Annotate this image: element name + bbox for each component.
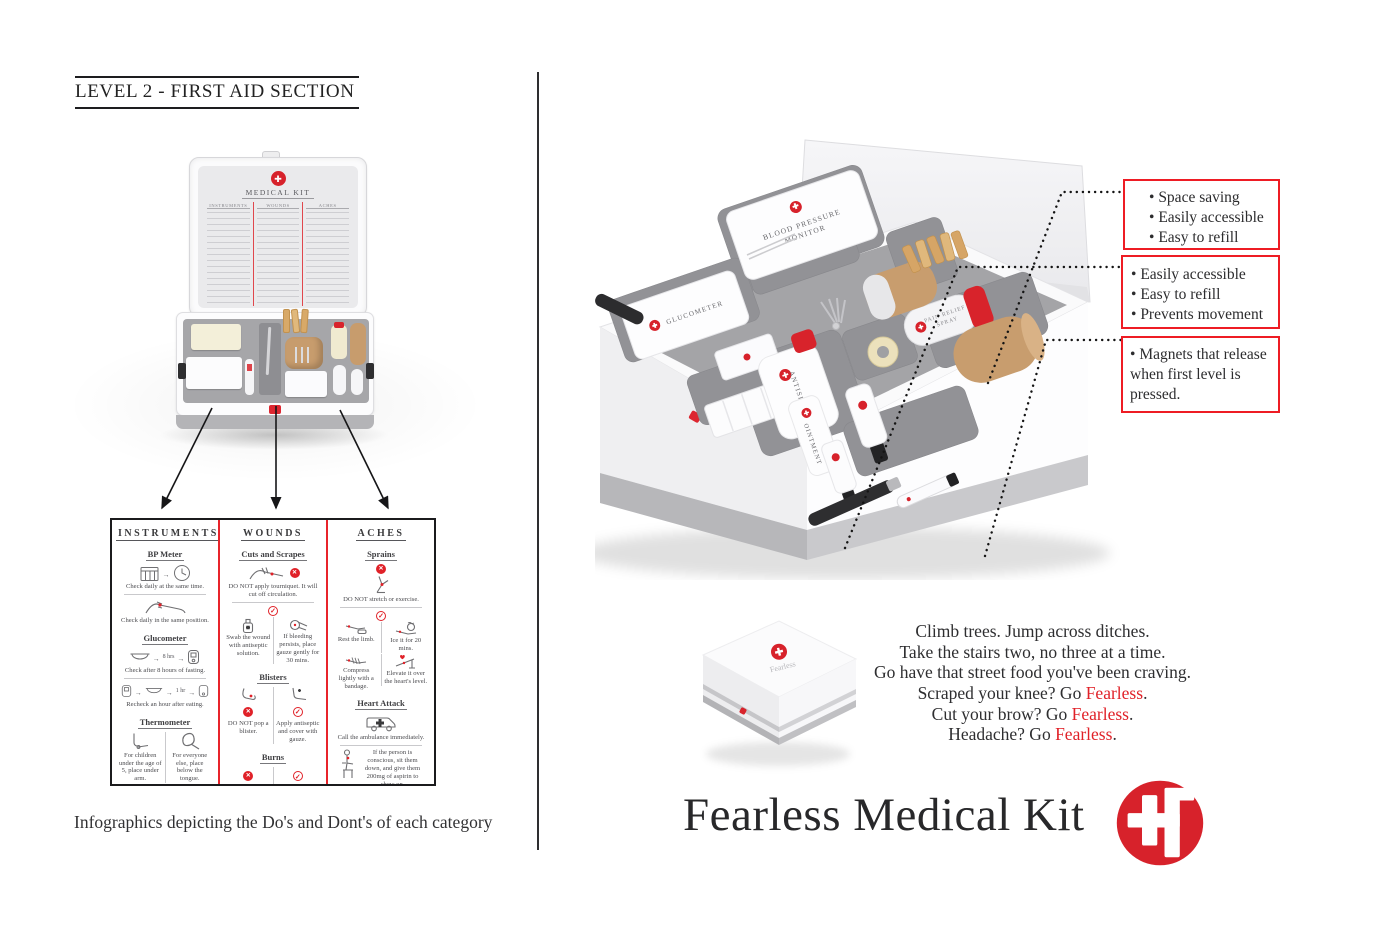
glucometer-device-icon — [198, 684, 209, 698]
infographic-column-aches: ACHES Sprains DO NOT stretch or exercise… — [326, 520, 434, 784]
tagline-line: Climb trees. Jump across ditches. — [860, 621, 1205, 642]
ice-pack-icon — [384, 622, 429, 637]
brand-title: Fearless Medical Kit — [683, 788, 1085, 842]
cell-caption: Elevate it over the heart's level. — [384, 670, 429, 686]
do-check-icon — [376, 611, 386, 621]
cell-caption: DO NOT stretch or exercise. — [332, 596, 430, 604]
elevate-leg-icon — [384, 654, 429, 670]
section-title: Sprains — [365, 549, 397, 561]
column-header: ACHES — [356, 528, 407, 541]
dont-x-icon — [376, 564, 386, 574]
bottle-item — [331, 325, 347, 359]
gauze-roll-icon — [276, 617, 321, 633]
dont-x-icon — [243, 771, 253, 781]
tagline-line: Headache? Go Fearless. — [860, 724, 1205, 745]
compress-bandage-icon — [334, 654, 379, 667]
open-kit-lid-render: MEDICAL KIT INSTRUMENTS WOUNDS ACHES — [189, 157, 367, 317]
white-box-item — [186, 357, 242, 389]
cell-caption: Recheck an hour after eating. — [116, 701, 214, 709]
do-check-icon — [293, 707, 303, 717]
cell-caption: Compress lightly with a bandage. — [334, 667, 379, 691]
cell-caption: Check daily at the same time. — [116, 583, 214, 591]
lid-kit-title: MEDICAL KIT — [242, 188, 314, 199]
crepe-roll-item — [350, 323, 366, 365]
callout-item: Prevents movement — [1131, 305, 1276, 325]
callout-item: Easily accessible — [1149, 208, 1274, 228]
bp-cuff-arm-icon — [143, 598, 187, 616]
lid-mini-column: ACHES — [302, 202, 352, 306]
column-header: WOUNDS — [241, 528, 305, 541]
mini-lines — [207, 212, 250, 304]
thermometer-mouth-icon — [168, 732, 213, 752]
cell-caption: Rest the limb. — [334, 636, 379, 644]
closed-kit-render: Fearless — [685, 612, 865, 777]
thermometer-underarm-icon — [118, 732, 163, 752]
brand-accent: Fearless — [1055, 724, 1112, 744]
arrow-right-icon — [177, 648, 184, 666]
dressing-pad-item — [191, 324, 241, 350]
cell-caption: For children under the age of 5, place u… — [118, 752, 163, 784]
brand-accent: Fearless — [1072, 704, 1129, 724]
antiseptic-bottle-icon — [226, 617, 271, 634]
callout-box-1: Space saving Easily accessible Easy to r… — [1123, 179, 1280, 250]
cell-caption: Call the ambulance immediately. — [332, 734, 430, 742]
section-title: BP Meter — [146, 549, 185, 561]
lancet-dish-icon — [145, 685, 163, 697]
calendar-icon — [140, 565, 160, 582]
cell-caption: DO NOT apply tourniquet. It will cut off… — [224, 583, 322, 599]
cell-caption: If bleeding persists, place gauze gently… — [276, 633, 321, 665]
infographic-caption: Infographics depicting the Do's and Dont… — [74, 812, 492, 833]
latch-icon — [366, 363, 374, 379]
duration-label: 8 hrs — [163, 654, 175, 660]
rest-limb-icon — [334, 622, 379, 636]
section-title: Thermometer — [138, 717, 193, 729]
ankle-gauze-icon — [276, 687, 321, 702]
lancet-dish-icon — [130, 650, 150, 664]
cell-caption: For everyone else, place below the tongu… — [168, 752, 213, 784]
cell-caption: Check after 8 hours of fasting. — [116, 667, 214, 675]
callout-item: Magnets that release when first level is… — [1130, 345, 1274, 405]
cell-caption: Swab the wound with antiseptic solution. — [226, 634, 271, 658]
dont-x-icon — [290, 568, 300, 578]
section-title-block: LEVEL 2 - FIRST AID SECTION — [75, 76, 359, 109]
fearless-cross-logo-icon — [1114, 778, 1206, 868]
column-header: INSTRUMENTS — [116, 528, 218, 541]
arrow-right-icon — [135, 682, 142, 700]
section-title: Glucometer — [142, 633, 189, 645]
clip-claw-item — [295, 347, 313, 363]
cell-caption: Ice it for 20 mins. — [384, 637, 429, 653]
arrow-right-icon — [163, 564, 170, 582]
infographic-column-instruments: INSTRUMENTS BP Meter Check daily at the … — [112, 520, 218, 784]
lid-mini-column: INSTRUMENTS — [204, 202, 253, 306]
vial-item — [333, 365, 346, 395]
vial-item — [351, 369, 363, 395]
foot-blister-icon — [226, 687, 271, 702]
bandage-roll-item — [285, 337, 323, 369]
tagline-line: Scraped your knee? Go Fearless. — [860, 683, 1205, 704]
seated-person-icon — [339, 749, 359, 779]
dos-donts-infographic: INSTRUMENTS BP Meter Check daily at the … — [110, 518, 436, 786]
callout-item: Space saving — [1149, 188, 1274, 208]
tagline-line: Cut your brow? Go Fearless. — [860, 704, 1205, 725]
pointer-arrows — [100, 400, 400, 518]
brand-accent: Fearless — [1086, 683, 1143, 703]
glucometer-device-icon — [187, 649, 200, 665]
mini-lines — [257, 212, 300, 304]
callout-item: Easily accessible — [1131, 265, 1276, 285]
section-title: Blisters — [257, 672, 288, 684]
fearless-cross-logo-icon — [271, 171, 286, 186]
callout-item: Easy to refill — [1149, 228, 1274, 248]
cell-caption: DO NOT pop a blister. — [226, 720, 271, 736]
bandaid-sticks-item — [283, 309, 319, 335]
page-title: LEVEL 2 - FIRST AID SECTION — [75, 81, 355, 102]
dont-x-icon — [243, 707, 253, 717]
closed-box-shadow — [706, 742, 850, 766]
infographic-column-wounds: WOUNDS Cuts and Scrapes DO NOT apply tou… — [218, 520, 326, 784]
gauze-pack-item — [285, 371, 327, 397]
mini-lines — [306, 212, 349, 304]
arrow-to-aches — [340, 410, 388, 508]
tagline-line: Take the stairs two, no three at a time. — [860, 642, 1205, 663]
page: LEVEL 2 - FIRST AID SECTION MEDICAL KIT … — [0, 0, 1400, 933]
kit-tray — [183, 319, 369, 403]
arrow-right-icon — [188, 682, 195, 700]
arrow-to-instruments — [162, 408, 212, 508]
page-divider — [537, 72, 539, 850]
section-title: Burns — [260, 752, 286, 764]
do-check-icon — [268, 606, 278, 616]
callout-box-2: Easily accessible Easy to refill Prevent… — [1121, 255, 1280, 329]
lid-mini-infographic: INSTRUMENTS WOUNDS ACHES — [204, 202, 352, 306]
thermometer-item — [245, 359, 254, 395]
callout-item: Easy to refill — [1131, 285, 1276, 305]
do-check-icon — [293, 771, 303, 781]
open-kit-perspective-render: BLOOD PRESSURE MONITOR GLUCOMETER — [595, 105, 1135, 580]
ambulance-icon — [364, 713, 398, 733]
clock-icon — [173, 564, 191, 582]
glucometer-device-icon — [121, 684, 132, 698]
arrow-right-icon — [166, 682, 173, 700]
cell-caption: Check daily in the same position. — [116, 617, 214, 625]
tape-roll-item — [868, 337, 898, 367]
duration-label: 1 hr — [176, 688, 186, 694]
arrow-right-icon — [153, 648, 160, 666]
tourniquet-arm-icon — [247, 564, 287, 582]
latch-icon — [178, 363, 186, 379]
sprained-leg-icon — [371, 575, 391, 595]
section-title: Cuts and Scrapes — [239, 549, 306, 561]
section-title: Heart Attack — [355, 698, 406, 710]
tagline-line: Go have that street food you've been cra… — [860, 662, 1205, 683]
callout-box-3: Magnets that release when first level is… — [1121, 336, 1280, 413]
lid-inner-panel: MEDICAL KIT INSTRUMENTS WOUNDS ACHES — [198, 166, 358, 308]
cell-caption: Apply antiseptic and cover with gauze. — [276, 720, 321, 744]
tagline-block: Climb trees. Jump across ditches. Take t… — [860, 621, 1205, 745]
lid-mini-column: WOUNDS — [253, 202, 303, 306]
cell-caption: If the person is conscious, sit them dow… — [362, 749, 424, 784]
